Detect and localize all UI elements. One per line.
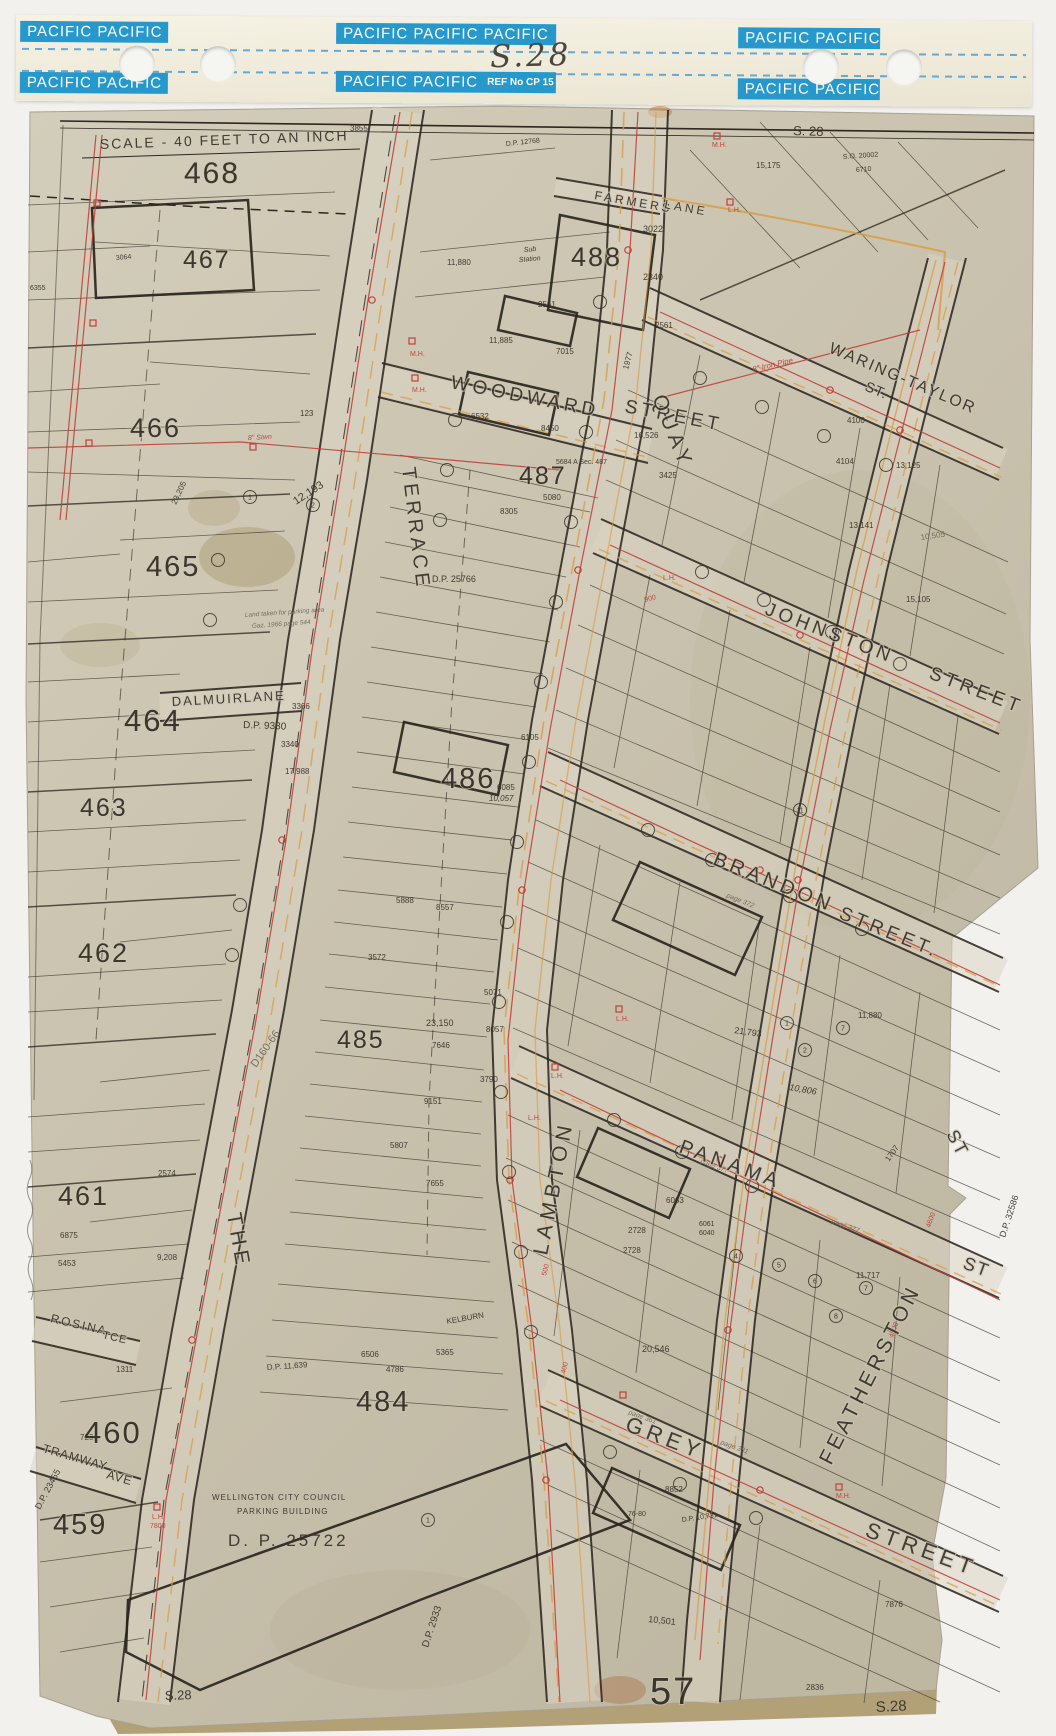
tape-brand-label: PACIFIC PACIFIC (738, 78, 880, 100)
block-number: 463 (80, 794, 128, 822)
block-number: 464 (124, 703, 182, 738)
map-annotation: M.H. (410, 351, 425, 358)
map-annotation: 5080 (543, 493, 561, 502)
map-annotation: 6063 (666, 1196, 684, 1205)
map-annotation: 6061 (699, 1221, 715, 1228)
block-number: 461 (58, 1181, 109, 1211)
map-annotation: 8" Stwn (248, 434, 272, 442)
street-label: LANE (243, 688, 286, 705)
map-annotation: 7655 (426, 1179, 444, 1188)
map-annotation: 23,150 (426, 1018, 454, 1028)
map-annotation: D.P. 9330 (243, 720, 287, 733)
map-annotation: L.H. (551, 1073, 564, 1080)
map-annotation: 7015 (556, 347, 574, 356)
map-annotation: D. P. 25722 (228, 1531, 349, 1550)
map-annotation: 4100 (847, 416, 865, 425)
map-annotation: 3790 (480, 1075, 498, 1084)
map-annotation: L.H. (728, 207, 741, 214)
map-annotation: 5888 (396, 896, 414, 905)
map-annotation: 4104 (836, 457, 854, 466)
map-annotation: 3366 (292, 702, 310, 711)
map-annotation: S.28 (875, 1697, 907, 1716)
survey-mark-number: 2 (803, 1048, 807, 1055)
survey-mark-number: 1 (426, 1518, 430, 1525)
map-annotation: 7876 (885, 1600, 903, 1609)
map-annotation: 6875 (60, 1231, 78, 1240)
survey-mark-number: 7 (864, 1286, 868, 1293)
map-annotation: 3022 (643, 224, 663, 234)
map-annotation: 3855 (350, 124, 368, 133)
sheet-number-handwritten: S.28 (490, 37, 572, 75)
map-annotation: WELLINGTON CITY COUNCIL (212, 1493, 346, 1502)
map-annotation: 5365 (436, 1348, 454, 1357)
binding-strip: PACIFIC PACIFIC PACIFIC PACIFIC PACIFIC … (16, 15, 1033, 107)
map-annotation: 6085 (497, 783, 515, 792)
map-annotation: 5453 (58, 1259, 76, 1268)
block-number: 466 (130, 413, 181, 443)
map-annotation: 2561 (538, 300, 556, 309)
map-annotation: 8557 (436, 903, 454, 912)
survey-mark-number: 2 (311, 503, 315, 510)
map-annotation: 5807 (390, 1141, 408, 1150)
punch-hole (803, 49, 839, 85)
map-annotation: S.28 (165, 1687, 192, 1703)
map-annotation: 3064 (116, 254, 132, 262)
map-annotation: 9151 (424, 1097, 442, 1106)
map-annotation: 3340 (281, 740, 299, 749)
tape-brand-label: PACIFIC PACIFIC (20, 21, 168, 43)
map-annotation: 2836 (806, 1683, 824, 1692)
map-annotation: M.H. (836, 1493, 851, 1500)
map-annotation: 16,526 (634, 431, 659, 440)
map-annotation: 2340 (643, 272, 663, 282)
tape-brand-label: PACIFIC PACIFIC (738, 27, 880, 49)
map-annotation: L.H. (663, 575, 676, 582)
survey-mark-number: 1 (785, 1021, 789, 1028)
map-annotation: 2561 (655, 321, 673, 330)
map-annotation: D.P. 25766 (432, 574, 476, 584)
map-annotation: 5071 (484, 988, 502, 997)
punch-hole (200, 46, 236, 82)
map-annotation: 11,880 (858, 1011, 882, 1020)
survey-mark-number: 11 (796, 808, 803, 815)
map-annotation: 3425 (659, 471, 677, 480)
block-number: 486 (441, 763, 495, 795)
map-annotation: L.H. (528, 1115, 541, 1122)
map-annotation: 4786 (386, 1365, 404, 1374)
block-number: 459 (53, 1509, 107, 1541)
map-annotation: 15,105 (906, 595, 931, 604)
map-annotation: 13,125 (896, 461, 921, 470)
map-annotation: 8852 (665, 1485, 683, 1494)
map-annotation: 6532 (471, 412, 489, 421)
map-annotation: 11,885 (489, 336, 513, 345)
block-number: 488 (571, 242, 622, 272)
block-number: 462 (78, 938, 129, 968)
map-annotation: D.P. 32586 (997, 1194, 1020, 1239)
map-annotation: 6105 (521, 733, 539, 742)
survey-mark-number: 1 (248, 495, 252, 502)
scanned-survey-map-sheet: PACIFIC PACIFIC PACIFIC PACIFIC PACIFIC … (0, 0, 1056, 1736)
map-annotation: S. 28 (793, 123, 824, 139)
map-annotation: 9,208 (157, 1253, 178, 1262)
block-number: 465 (146, 551, 200, 583)
map-annotation: 6506 (361, 1350, 379, 1359)
survey-mark-number: 5 (777, 1263, 781, 1270)
map-annotation: 6040 (699, 1230, 715, 1237)
block-number: 487 (519, 462, 567, 490)
map-annotation: 8305 (500, 507, 518, 516)
map-annotation: PARKING BUILDING (237, 1507, 328, 1516)
ref-number-label: REF No CP 15 (487, 77, 554, 88)
map-annotation: 2728 (623, 1246, 641, 1255)
map-annotation: 7800 (150, 1523, 166, 1530)
map-annotation: 8450 (541, 424, 559, 433)
survey-mark-number: 6 (813, 1279, 817, 1286)
map-annotation: 10,057 (489, 794, 514, 803)
survey-mark-number: 8 (834, 1314, 838, 1321)
map-annotation: 13,141 (849, 521, 874, 530)
map-annotation: 7646 (432, 1041, 450, 1050)
map-annotation: 2574 (158, 1169, 176, 1178)
map-annotation: 1311 (116, 1365, 134, 1374)
map-annotation: 6710 (856, 166, 872, 174)
survey-mark-number: 7 (841, 1026, 845, 1033)
map-annotation: 11,717 (856, 1271, 880, 1280)
map-annotation: 8057 (486, 1025, 504, 1034)
map-annotation: 123 (300, 409, 314, 418)
map-linework: 1211456872711 SCALE - 40 FEET TO AN INCH… (0, 0, 1056, 1736)
map-annotation: M.H. (412, 387, 427, 394)
map-annotation: Sub (524, 246, 537, 254)
map-annotation: 20,546 (642, 1344, 670, 1354)
map-annotation: 17,988 (285, 767, 310, 776)
map-annotation: 76-80 (628, 1511, 646, 1518)
map-annotation: 11,880 (447, 258, 471, 267)
block-number: 484 (356, 1386, 410, 1418)
block-number: 468 (184, 157, 240, 190)
block-number: 460 (84, 1415, 142, 1450)
map-annotation: 15,175 (756, 161, 781, 170)
map-annotation: 6355 (30, 285, 46, 292)
map-annotation: M.H. (712, 142, 727, 149)
block-number: 57 (650, 1671, 696, 1713)
punch-hole (119, 46, 155, 82)
map-annotation: 3572 (368, 953, 386, 962)
map-annotation: L.H. (152, 1514, 165, 1521)
block-number: 467 (183, 246, 231, 274)
punch-hole (886, 49, 922, 85)
survey-mark-number: 4 (734, 1254, 738, 1261)
map-annotation: 2728 (628, 1226, 646, 1235)
map-annotation: L.H. (616, 1016, 629, 1023)
block-number: 485 (337, 1026, 385, 1054)
